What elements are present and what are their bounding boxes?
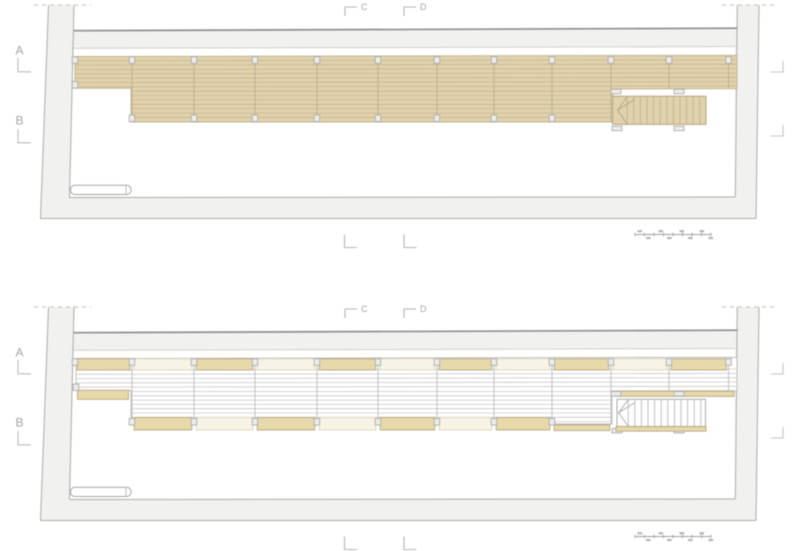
svg-text:C: C (361, 304, 368, 314)
svg-text:A: A (16, 346, 24, 360)
svg-text:B: B (16, 416, 24, 430)
svg-text:C: C (361, 2, 368, 12)
svg-text:D: D (420, 304, 427, 314)
svg-text:A: A (16, 44, 24, 58)
svg-text:D: D (420, 2, 427, 12)
svg-text:B: B (16, 114, 24, 128)
